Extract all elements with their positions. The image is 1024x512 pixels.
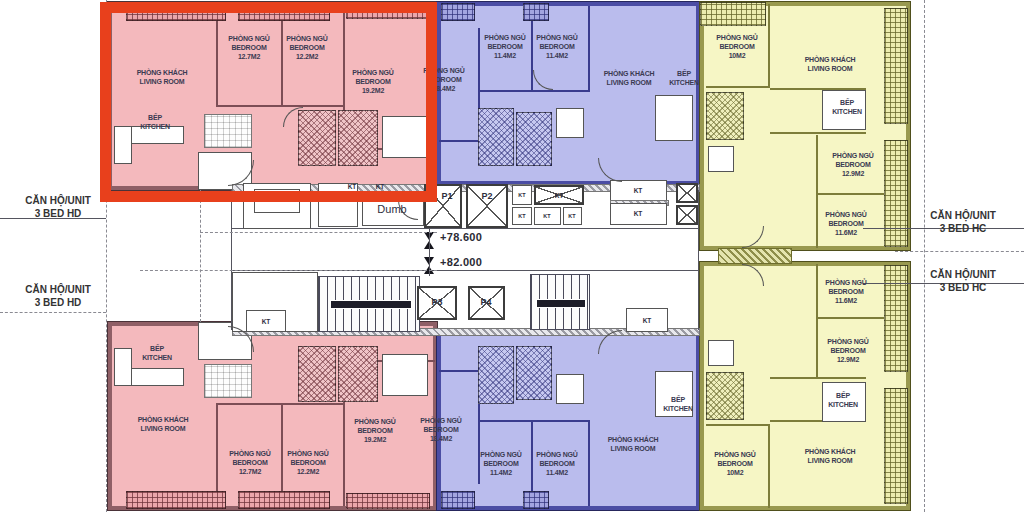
kitchen-counter <box>655 95 693 141</box>
shaft <box>676 183 698 203</box>
bathroom <box>706 372 744 420</box>
room-area: 10M2 <box>714 469 755 478</box>
bathroom <box>478 346 514 404</box>
room-area: 18.4M2 <box>420 435 461 444</box>
pink-bottom-bedroom1-label: PHÒNG NGỦ BEDROOM 12.7M2 <box>229 449 270 476</box>
yellow-top-bedroom1-label: PHÒNG NGỦ BEDROOM 10M2 <box>716 33 757 60</box>
blue-bottom-bedroom2-label: PHÒNG NGỦ BEDROOM 11.4M2 <box>536 450 577 477</box>
room-name-en: BEDROOM <box>832 160 873 169</box>
room-area: 11.4M2 <box>480 469 521 478</box>
wall <box>588 420 590 506</box>
wall <box>439 140 480 142</box>
dim-line <box>895 251 1024 252</box>
bathroom <box>516 346 552 400</box>
pink-bottom-living-label: PHÒNG KHÁCH LIVING ROOM <box>138 415 189 433</box>
wall <box>816 317 884 319</box>
room-name-en: KITCHEN <box>663 404 693 413</box>
room-area: 12.9M2 <box>827 356 868 365</box>
level-82-000: +82.000 <box>440 256 482 268</box>
unit-blue-top <box>437 2 700 185</box>
room-area: 12.7M2 <box>229 468 270 477</box>
blue-top-bedroom2-label: PHÒNG NGỦ BEDROOM 11.4M2 <box>536 33 577 60</box>
blue-top-living-label: PHÒNG KHÁCH LIVING ROOM <box>604 69 655 87</box>
wall <box>768 424 770 508</box>
yellow-top-kitchen-label: BẾP KITCHEN <box>832 98 862 116</box>
balcony <box>884 8 908 124</box>
room-name-en: BEDROOM <box>536 42 577 51</box>
stair-rail <box>330 300 412 309</box>
balcony <box>346 493 430 509</box>
yellow-bottom-bedroom1-label: PHÒNG NGỦ BEDROOM 10M2 <box>714 450 755 477</box>
balcony <box>523 3 549 21</box>
room-name-vn: PHÒNG NGỦ <box>825 278 866 287</box>
dim-line <box>200 232 437 233</box>
shaft <box>556 108 584 138</box>
wall <box>770 377 866 379</box>
dim-line <box>0 312 106 313</box>
room-name-en: LIVING ROOM <box>805 456 856 465</box>
pink-bottom-bedroom3-label: PHÒNG NGỦ BEDROOM 19.2M2 <box>354 417 395 444</box>
room-name-en: LIVING ROOM <box>138 424 189 433</box>
room-name-en: KITCHEN <box>828 400 858 409</box>
unit-type-line1: CĂN HỘ/UNIT <box>930 210 996 223</box>
kt-label: KT <box>518 192 525 198</box>
room-name-vn: PHÒNG KHÁCH <box>805 55 856 64</box>
room-name-en: KITCHEN <box>142 353 172 362</box>
elevator-p4-label: P4 <box>480 297 491 307</box>
room-area: 11.4M2 <box>484 52 525 61</box>
balcony <box>884 140 908 247</box>
shaft <box>556 374 584 404</box>
blue-bottom-kitchen-label: BẾP KITCHEN <box>663 395 693 413</box>
wall <box>588 6 590 92</box>
room-name-en: KITCHEN <box>669 78 699 87</box>
balcony <box>238 491 330 509</box>
room-name-en: BEDROOM <box>420 425 461 434</box>
room-name-en: BEDROOM <box>354 426 395 435</box>
elevator-p1-label: P1 <box>441 191 452 201</box>
room-name-vn: BẾP <box>663 395 693 404</box>
kt-label: KT <box>555 192 564 199</box>
room-name-vn: PHÒNG KHÁCH <box>138 415 189 424</box>
room-name-vn: PHÒNG NGỦ <box>480 450 521 459</box>
wall <box>816 193 884 195</box>
balcony <box>884 265 908 372</box>
bathroom <box>298 346 336 402</box>
yellow-bottom-kitchen-label: BẾP KITCHEN <box>828 391 858 409</box>
shaft <box>708 146 734 172</box>
room-name-vn: PHÒNG KHÁCH <box>604 69 655 78</box>
kt-label: KT <box>543 213 550 219</box>
kitchen-counter <box>114 348 132 386</box>
room-name-en: BEDROOM <box>287 458 328 467</box>
room-name-en: LIVING ROOM <box>608 444 659 453</box>
corridor-wall <box>698 190 699 330</box>
kt-label: KT <box>643 317 652 324</box>
room-name-en: BEDROOM <box>480 459 521 468</box>
balcony <box>884 388 908 504</box>
room-name-vn: PHÒNG NGỦ <box>229 449 270 458</box>
pink-bottom-kitchen-label: BẾP KITCHEN <box>142 344 172 362</box>
room-area: 19.2M2 <box>354 436 395 445</box>
unit-type-hc-bottom: CĂN HỘ/UNIT 3 BED HC <box>930 269 996 294</box>
wall <box>478 420 590 422</box>
kt-label: KT <box>568 213 575 219</box>
wall <box>768 4 770 88</box>
room-name-en: BEDROOM <box>536 459 577 468</box>
unit-type-line2: 3 BED HD <box>25 207 91 220</box>
unit-type-line2: 3 BED HC <box>930 281 996 294</box>
blue-bottom-bedroom1-label: PHÒNG NGỦ BEDROOM 11.4M2 <box>480 450 521 477</box>
unit-type-line1: CĂN HỘ/UNIT <box>930 269 996 282</box>
wall <box>439 370 480 372</box>
room-area: 12.2M2 <box>287 468 328 477</box>
shaft <box>676 205 698 225</box>
room-name-vn: PHÒNG NGỦ <box>714 450 755 459</box>
room-name-en: BEDROOM <box>825 219 866 228</box>
dumbwaiter-label: Dumb <box>377 203 406 215</box>
room-name-vn: PHÒNG NGỦ <box>827 337 868 346</box>
stair-rail <box>536 299 586 308</box>
room-area: 11.4M2 <box>536 469 577 478</box>
room-name-vn: PHÒNG NGỦ <box>832 151 873 160</box>
room-name-vn: BẾP <box>832 98 862 107</box>
room-name-vn: PHÒNG NGỦ <box>825 210 866 219</box>
blue-top-kitchen-label: BẾP KITCHEN <box>669 69 699 87</box>
room-name-en: BEDROOM <box>716 42 757 51</box>
grid-line <box>924 0 925 512</box>
room-name-vn: PHÒNG KHÁCH <box>608 435 659 444</box>
room-area: 12.9M2 <box>832 170 873 179</box>
blue-top-bedroom1-label: PHÒNG NGỦ BEDROOM 11.4M2 <box>484 33 525 60</box>
highlight-box <box>100 2 437 202</box>
unit-type-line1: CĂN HỘ/UNIT <box>25 284 91 297</box>
wall <box>478 90 590 92</box>
bathroom <box>706 92 744 140</box>
bathroom <box>338 346 378 402</box>
wall <box>816 135 818 248</box>
room-name-en: BEDROOM <box>825 287 866 296</box>
yellow-bottom-living-label: PHÒNG KHÁCH LIVING ROOM <box>805 447 856 465</box>
room-area: 11.6M2 <box>825 229 866 238</box>
room-name-vn: PHÒNG NGỦ <box>287 449 328 458</box>
dim-line <box>140 270 437 271</box>
unit-type-hd-top: CĂN HỘ/UNIT 3 BED HD <box>25 195 91 220</box>
wall <box>216 403 345 405</box>
room-name-vn: BẾP <box>828 391 858 400</box>
wall <box>816 264 818 377</box>
elevator-p2-label: P2 <box>481 191 492 201</box>
pink-bottom-bedroom2-label: PHÒNG NGỦ BEDROOM 12.2M2 <box>287 449 328 476</box>
kt-label: KT <box>634 210 643 217</box>
room-area: 10M2 <box>716 52 757 61</box>
room-name-vn: PHÒNG NGỦ <box>536 33 577 42</box>
room-name-vn: PHÒNG NGỦ <box>420 416 461 425</box>
level-78-600: +78.600 <box>440 231 482 243</box>
section-line <box>429 228 430 276</box>
kt-label: KT <box>518 213 525 219</box>
room-name-en: BEDROOM <box>714 459 755 468</box>
wall <box>706 424 770 426</box>
room-name-en: LIVING ROOM <box>604 78 655 87</box>
room-name-vn: PHÒNG NGỦ <box>484 33 525 42</box>
room-area: 11.4M2 <box>536 52 577 61</box>
balcony <box>441 491 475 509</box>
yellow-bottom-bedroom2-label: PHÒNG NGỦ BEDROOM 12.9M2 <box>827 337 868 364</box>
room-name-en: LIVING ROOM <box>805 64 856 73</box>
party-wall <box>718 248 792 264</box>
grid-line <box>200 190 201 322</box>
closet <box>382 354 428 396</box>
wall <box>706 86 770 88</box>
room-name-vn: PHÒNG NGỦ <box>354 417 395 426</box>
room-name-vn: PHÒNG KHÁCH <box>805 447 856 456</box>
blue-bottom-living-label: PHÒNG KHÁCH LIVING ROOM <box>608 435 659 453</box>
room-name-en: BEDROOM <box>484 42 525 51</box>
bathroom <box>478 108 514 166</box>
room-name-en: KITCHEN <box>832 107 862 116</box>
shaft <box>708 340 734 366</box>
room-name-en: BEDROOM <box>229 458 270 467</box>
yellow-bottom-bedroom3-label: PHÒNG NGỦ BEDROOM 11.6M2 <box>825 278 866 305</box>
wall <box>770 132 866 134</box>
yellow-top-bedroom3-label: PHÒNG NGỦ BEDROOM 11.6M2 <box>825 210 866 237</box>
room-name-vn: BẾP <box>142 344 172 353</box>
room-name-vn: PHÒNG NGỦ <box>536 450 577 459</box>
balcony <box>523 491 549 509</box>
unit-type-line2: 3 BED HC <box>930 222 996 235</box>
yellow-top-living-label: PHÒNG KHÁCH LIVING ROOM <box>805 55 856 73</box>
kt-label: KT <box>634 187 643 194</box>
room-area: 11.6M2 <box>825 297 866 306</box>
unit-type-line2: 3 BED HD <box>25 296 91 309</box>
kt-label: KT <box>262 318 271 325</box>
elevator-p3-label: P3 <box>431 297 442 307</box>
room-name-vn: PHÒNG NGỦ <box>716 33 757 42</box>
unit-type-hc-top: CĂN HỘ/UNIT 3 BED HC <box>930 210 996 235</box>
balcony <box>126 491 226 509</box>
balcony <box>441 3 475 21</box>
room-name-en: BEDROOM <box>827 346 868 355</box>
wardrobe <box>204 364 252 398</box>
yellow-top-bedroom2-label: PHÒNG NGỦ BEDROOM 12.9M2 <box>832 151 873 178</box>
unit-type-hd-bottom: CĂN HỘ/UNIT 3 BED HD <box>25 284 91 309</box>
bathroom <box>516 112 552 166</box>
room-name-vn: BẾP <box>669 69 699 78</box>
floor-plan: PHÒNG KHÁCH LIVING ROOM PHÒNG NGỦ BEDROO… <box>0 0 1024 512</box>
unit-type-line1: CĂN HỘ/UNIT <box>25 195 91 208</box>
balcony <box>700 2 766 26</box>
blue-bottom-bedroomL-label: PHÒNG NGỦ BEDROOM 18.4M2 <box>420 416 461 443</box>
